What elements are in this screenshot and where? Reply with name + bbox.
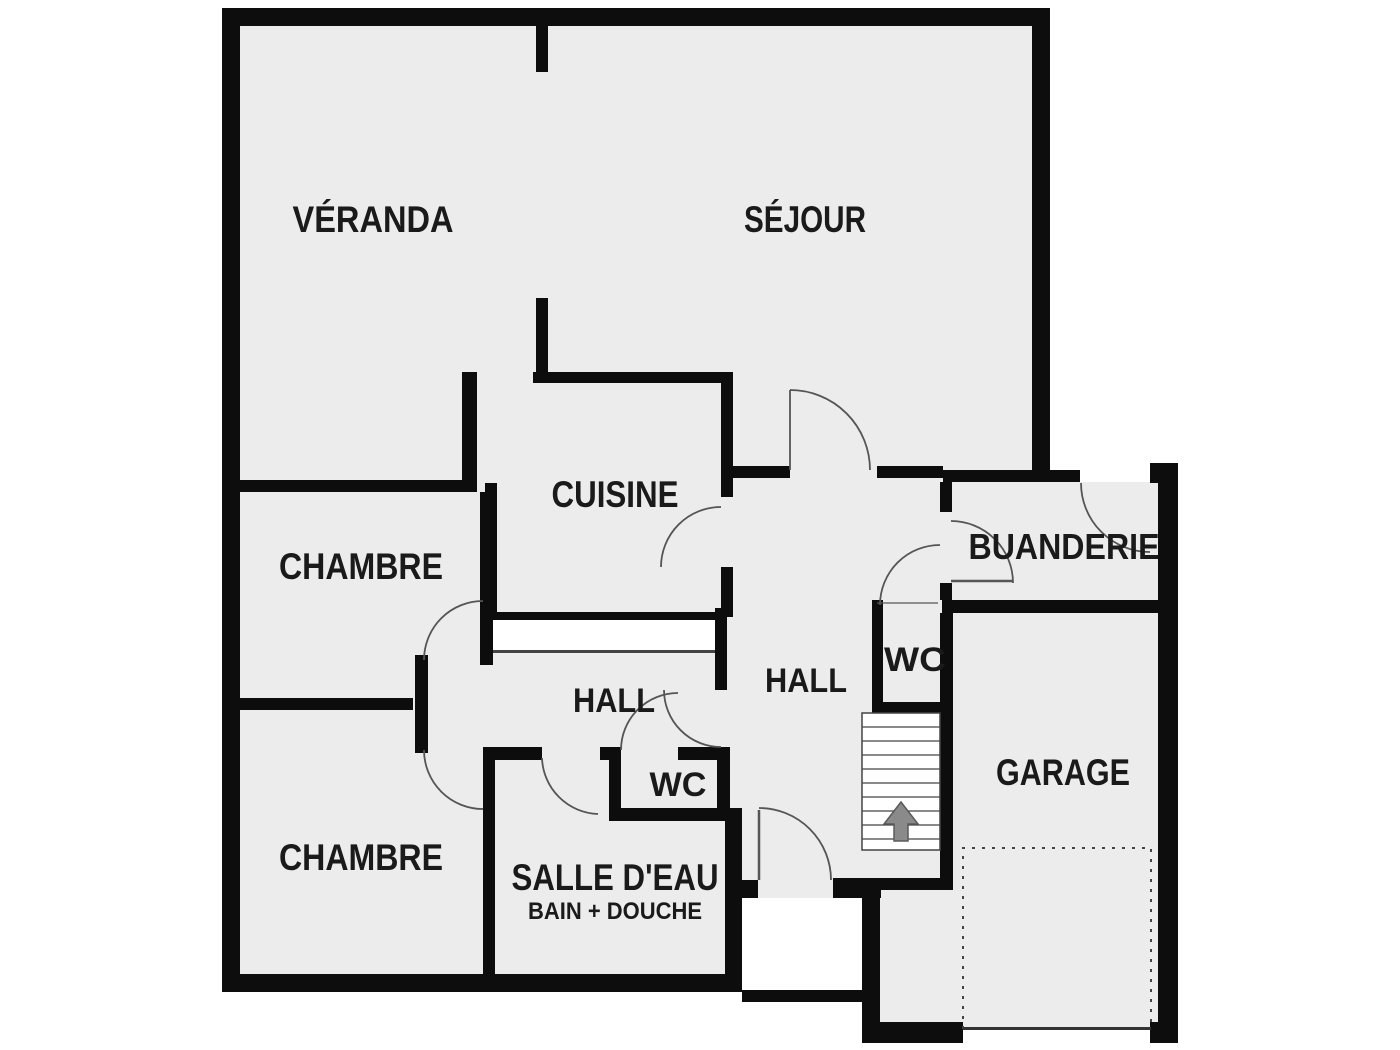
room-label-cuisine: CUISINE xyxy=(552,474,679,515)
room-label-buanderie: BUANDERIE xyxy=(969,526,1160,567)
room-label-veranda: VÉRANDA xyxy=(293,199,454,240)
room-label-chambre-1: CHAMBRE xyxy=(279,546,443,587)
room-sublabel-salle-deau: BAIN + DOUCHE xyxy=(528,898,702,925)
staircase xyxy=(862,713,940,850)
room-label-wc-right: WC xyxy=(884,641,946,679)
room-label-chambre-2: CHAMBRE xyxy=(279,837,443,878)
floor-plan: VÉRANDA SÉJOUR CUISINE CHAMBRE BUANDERIE… xyxy=(0,0,1400,1050)
room-label-sejour: SÉJOUR xyxy=(744,199,866,240)
floor-plan-page: VÉRANDA SÉJOUR CUISINE CHAMBRE BUANDERIE… xyxy=(0,0,1400,1050)
room-label-wc-center: WC xyxy=(650,766,707,804)
room-label-garage: GARAGE xyxy=(996,752,1130,793)
back-porch-recess xyxy=(742,898,862,990)
room-label-hall-right: HALL xyxy=(765,662,847,700)
room-label-hall-center: HALL xyxy=(573,682,655,720)
room-label-salle-deau: SALLE D'EAU xyxy=(512,857,719,898)
